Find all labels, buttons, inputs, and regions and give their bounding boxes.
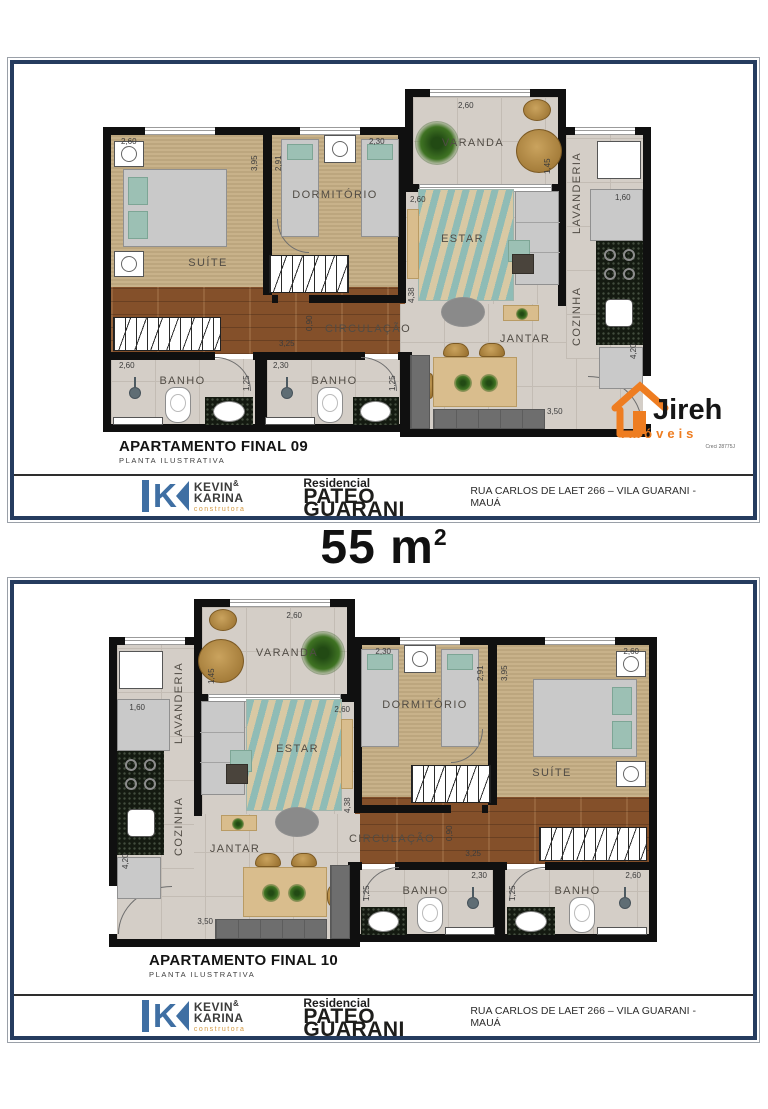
dim-estar-depth: 4,38 xyxy=(343,783,353,813)
kevin-karina-logo: K KEVIN& KARINA construtora xyxy=(142,998,245,1035)
wall xyxy=(272,295,278,303)
dim-banho1-depth: 1,25 xyxy=(242,363,252,391)
project-name-block: Residencial PATEO GUARANI xyxy=(303,997,470,1036)
dim-banho2-depth: 1,25 xyxy=(362,873,372,901)
dim-lavanderia-width: 1,60 xyxy=(615,193,631,202)
apartment-title: APARTAMENTO FINAL 09 xyxy=(119,438,308,455)
double-bed xyxy=(533,679,637,757)
dim-cozinha-depth: 4,20 xyxy=(629,329,639,359)
floor-plan: SUÍTE DORMITÓRIO VARANDA ESTAR LAVANDERI… xyxy=(103,89,663,439)
project-name: PATEO GUARANI xyxy=(303,1010,470,1036)
wall xyxy=(482,805,488,813)
nightstand xyxy=(324,135,356,163)
wall xyxy=(405,89,413,192)
area-headline: 55 m2 xyxy=(0,520,768,575)
dim-hall-width: 3,25 xyxy=(279,339,295,348)
toilet xyxy=(417,897,443,933)
dining-table xyxy=(243,867,327,917)
room-label-banho2: BANHO xyxy=(307,375,362,387)
jireh-logo: Jireh imóveis Creci 28775J xyxy=(609,372,739,458)
window xyxy=(125,637,185,645)
builder-name: KEVIN& KARINA construtora xyxy=(194,998,246,1035)
wall xyxy=(395,862,507,870)
stove-burner xyxy=(125,759,137,771)
wall xyxy=(643,127,651,376)
caption-10: APARTAMENTO FINAL 10 PLANTA ILUSTRATIVA xyxy=(149,952,338,979)
window xyxy=(300,127,360,135)
wall xyxy=(545,862,657,870)
dining-table xyxy=(433,357,517,407)
dim-cozinha-depth: 4,20 xyxy=(121,839,131,869)
dim-banho1-width: 2,60 xyxy=(625,871,641,880)
logo-triangle-icon xyxy=(176,1001,189,1031)
shower-icon xyxy=(129,387,141,399)
plan-slot-10: SUÍTE DORMITÓRIO VARANDA ESTAR LAVANDERI… xyxy=(97,599,657,949)
dim-circulacao-width: 0,90 xyxy=(445,811,455,841)
bathroom-sink xyxy=(507,907,555,935)
window xyxy=(430,89,530,97)
apartment-subtitle: PLANTA ILUSTRATIVA xyxy=(149,970,338,979)
shower-icon xyxy=(619,897,631,909)
shower-stem xyxy=(472,887,474,897)
wall xyxy=(253,352,365,360)
plan-slot-09: SUÍTE DORMITÓRIO VARANDA ESTAR LAVANDERI… xyxy=(103,89,663,439)
bathroom-sink xyxy=(353,397,399,425)
kitchen-sink xyxy=(127,809,155,837)
logo-bar xyxy=(142,1000,149,1032)
caption-09: APARTAMENTO FINAL 09 PLANTA ILUSTRATIVA xyxy=(119,438,308,465)
basket xyxy=(209,609,237,631)
shower-ledge xyxy=(445,927,495,935)
stove-burner xyxy=(144,778,156,790)
pouf xyxy=(516,129,562,173)
dim-estar-width: 2,60 xyxy=(334,705,350,714)
dim-suite-depth: 3,95 xyxy=(250,141,260,171)
stove-burner xyxy=(623,249,635,261)
nightstand xyxy=(114,251,144,277)
window xyxy=(145,127,215,135)
area-value: 55 xyxy=(320,521,375,574)
apartment-title: APARTAMENTO FINAL 10 xyxy=(149,952,338,969)
shower-ledge xyxy=(597,927,647,935)
dim-banho2-width: 2,30 xyxy=(471,871,487,880)
project-name-block: Residencial PATEO GUARANI xyxy=(303,477,470,516)
dim-estar-depth: 4,38 xyxy=(407,273,417,303)
logo-k-glyph: K xyxy=(153,481,175,511)
pouf xyxy=(198,639,244,683)
dim-jantar-width: 3,50 xyxy=(197,917,213,926)
shower-icon xyxy=(281,387,293,399)
shower-stem xyxy=(134,377,136,387)
wardrobe xyxy=(113,317,221,351)
dim-banho1-width: 2,60 xyxy=(119,361,135,370)
builder-name: KEVIN& KARINA construtora xyxy=(194,478,246,515)
dim-varanda-depth: 1,45 xyxy=(543,144,553,174)
chair xyxy=(291,853,317,867)
apartment-subtitle: PLANTA ILUSTRATIVA xyxy=(119,456,308,465)
wall xyxy=(309,295,398,303)
room-label-banho2: BANHO xyxy=(398,885,453,897)
armchair xyxy=(275,807,319,837)
sofa xyxy=(515,191,559,285)
window xyxy=(575,127,635,135)
room-label-cozinha: COZINHA xyxy=(173,791,189,861)
wardrobe xyxy=(411,765,491,803)
shower-stem xyxy=(286,377,288,387)
single-bed xyxy=(361,139,399,237)
stove-burner xyxy=(623,268,635,280)
dim-jantar-width: 3,50 xyxy=(547,407,563,416)
stove-burner xyxy=(604,249,616,261)
bathroom-sink xyxy=(205,397,253,425)
sideboard xyxy=(215,919,327,939)
shower-ledge xyxy=(113,417,163,425)
room-label-circulacao: CIRCULAÇÃO xyxy=(342,833,442,845)
window xyxy=(230,599,330,607)
chair xyxy=(255,853,281,867)
sideboard xyxy=(433,409,545,429)
dim-suite-width: 2,60 xyxy=(623,647,639,656)
room-label-banho1: BANHO xyxy=(155,375,210,387)
sideboard xyxy=(330,865,350,939)
jireh-name: Jireh xyxy=(653,394,722,427)
shower-icon xyxy=(467,897,479,909)
coffee-table xyxy=(503,305,539,321)
wall xyxy=(649,637,657,942)
footer-bar: K KEVIN& KARINA construtora Residencial … xyxy=(14,474,753,516)
nightstand xyxy=(404,645,436,673)
room-label-lavanderia: LAVANDERIA xyxy=(571,147,587,239)
window xyxy=(545,637,615,645)
flyer-page: { "page": { "area_value": "55", "area_un… xyxy=(0,0,768,1109)
single-bed xyxy=(281,139,319,237)
wall xyxy=(398,135,406,303)
chair xyxy=(479,343,505,357)
room-label-dormitorio: DORMITÓRIO xyxy=(365,699,485,711)
dim-estar-width: 2,60 xyxy=(410,195,426,204)
room-label-jantar: JANTAR xyxy=(205,843,265,855)
stove-burner xyxy=(604,268,616,280)
double-bed xyxy=(123,169,227,247)
wall xyxy=(405,184,419,192)
kitchen-sink xyxy=(605,299,633,327)
room-label-banho1: BANHO xyxy=(550,885,605,897)
wall xyxy=(103,352,215,360)
wall xyxy=(400,352,410,437)
room-label-varanda: VARANDA xyxy=(247,647,327,659)
room-label-lavanderia: LAVANDERIA xyxy=(173,657,189,749)
project-address: RUA CARLOS DE LAET 266 – VILA GUARANI - … xyxy=(470,1005,711,1036)
rug xyxy=(246,699,342,811)
room-label-cozinha: COZINHA xyxy=(571,281,587,351)
sideboard xyxy=(410,355,430,429)
dim-suite-depth: 3,95 xyxy=(500,651,510,681)
area-unit: m xyxy=(390,521,434,574)
room-label-suite: SUÍTE xyxy=(163,257,253,269)
room-label-estar: ESTAR xyxy=(260,743,335,755)
area-superscript: 2 xyxy=(434,524,448,550)
logo-triangle-icon xyxy=(176,481,189,511)
toilet xyxy=(317,387,343,423)
room-label-varanda: VARANDA xyxy=(433,137,513,149)
room-label-jantar: JANTAR xyxy=(495,333,555,345)
wardrobe xyxy=(539,827,647,861)
kevin-karina-logo: K KEVIN& KARINA construtora xyxy=(142,478,245,515)
dim-varanda-depth: 1,45 xyxy=(207,654,217,684)
dim-dormitorio-width: 2,30 xyxy=(369,137,385,146)
dim-circulacao-width: 0,90 xyxy=(305,301,315,331)
sofa xyxy=(201,701,245,795)
dim-banho2-depth: 1,25 xyxy=(388,363,398,391)
room-label-circulacao: CIRCULAÇÃO xyxy=(318,323,418,335)
logo-k-glyph: K xyxy=(153,1001,175,1031)
plan-frame-09: SUÍTE DORMITÓRIO VARANDA ESTAR LAVANDERI… xyxy=(10,60,757,520)
single-bed xyxy=(441,649,479,747)
toilet xyxy=(569,897,595,933)
floor-plan: SUÍTE DORMITÓRIO VARANDA ESTAR LAVANDERI… xyxy=(97,599,657,949)
single-bed xyxy=(361,649,399,747)
tv-rack xyxy=(341,719,353,789)
armchair xyxy=(441,297,485,327)
wall xyxy=(103,127,111,432)
shower-ledge xyxy=(265,417,315,425)
stove-burner xyxy=(144,759,156,771)
dim-dormitorio-depth: 2,91 xyxy=(476,651,486,681)
room-label-dormitorio: DORMITÓRIO xyxy=(275,189,395,201)
wall xyxy=(109,637,117,886)
jireh-creci: Creci 28775J xyxy=(706,444,735,450)
dim-banho2-width: 2,30 xyxy=(273,361,289,370)
coffee-table xyxy=(221,815,257,831)
chair xyxy=(443,343,469,357)
dim-dormitorio-depth: 2,91 xyxy=(274,141,284,171)
stove-burner xyxy=(125,778,137,790)
room-label-suite: SUÍTE xyxy=(507,767,597,779)
laundry-tank xyxy=(119,651,163,689)
dim-banho1-depth: 1,25 xyxy=(508,873,518,901)
dim-varanda-width: 2,60 xyxy=(286,611,302,620)
basket xyxy=(523,99,551,121)
wardrobe xyxy=(269,255,349,293)
project-name: PATEO GUARANI xyxy=(303,490,470,516)
nightstand xyxy=(616,761,646,787)
logo-bar xyxy=(142,480,149,512)
rug xyxy=(418,189,514,301)
jireh-subtitle: imóveis xyxy=(621,426,697,441)
project-address: RUA CARLOS DE LAET 266 – VILA GUARANI - … xyxy=(470,485,711,516)
wall xyxy=(341,694,355,702)
dim-lavanderia-width: 1,60 xyxy=(129,703,145,712)
dim-dormitorio-width: 2,30 xyxy=(375,647,391,656)
room-label-estar: ESTAR xyxy=(425,233,500,245)
dim-hall-width: 3,25 xyxy=(465,849,481,858)
footer-bar: K KEVIN& KARINA construtora Residencial … xyxy=(14,994,753,1036)
dim-varanda-width: 2,60 xyxy=(458,101,474,110)
dim-suite-width: 2,60 xyxy=(121,137,137,146)
plan-frame-10: SUÍTE DORMITÓRIO VARANDA ESTAR LAVANDERI… xyxy=(10,580,757,1040)
laundry-tank xyxy=(597,141,641,179)
tv-rack xyxy=(407,209,419,279)
toilet xyxy=(165,387,191,423)
bathroom-sink xyxy=(361,907,407,935)
wall xyxy=(109,939,360,947)
window xyxy=(400,637,460,645)
shower-stem xyxy=(624,887,626,897)
wall xyxy=(362,805,451,813)
wall xyxy=(350,862,360,947)
